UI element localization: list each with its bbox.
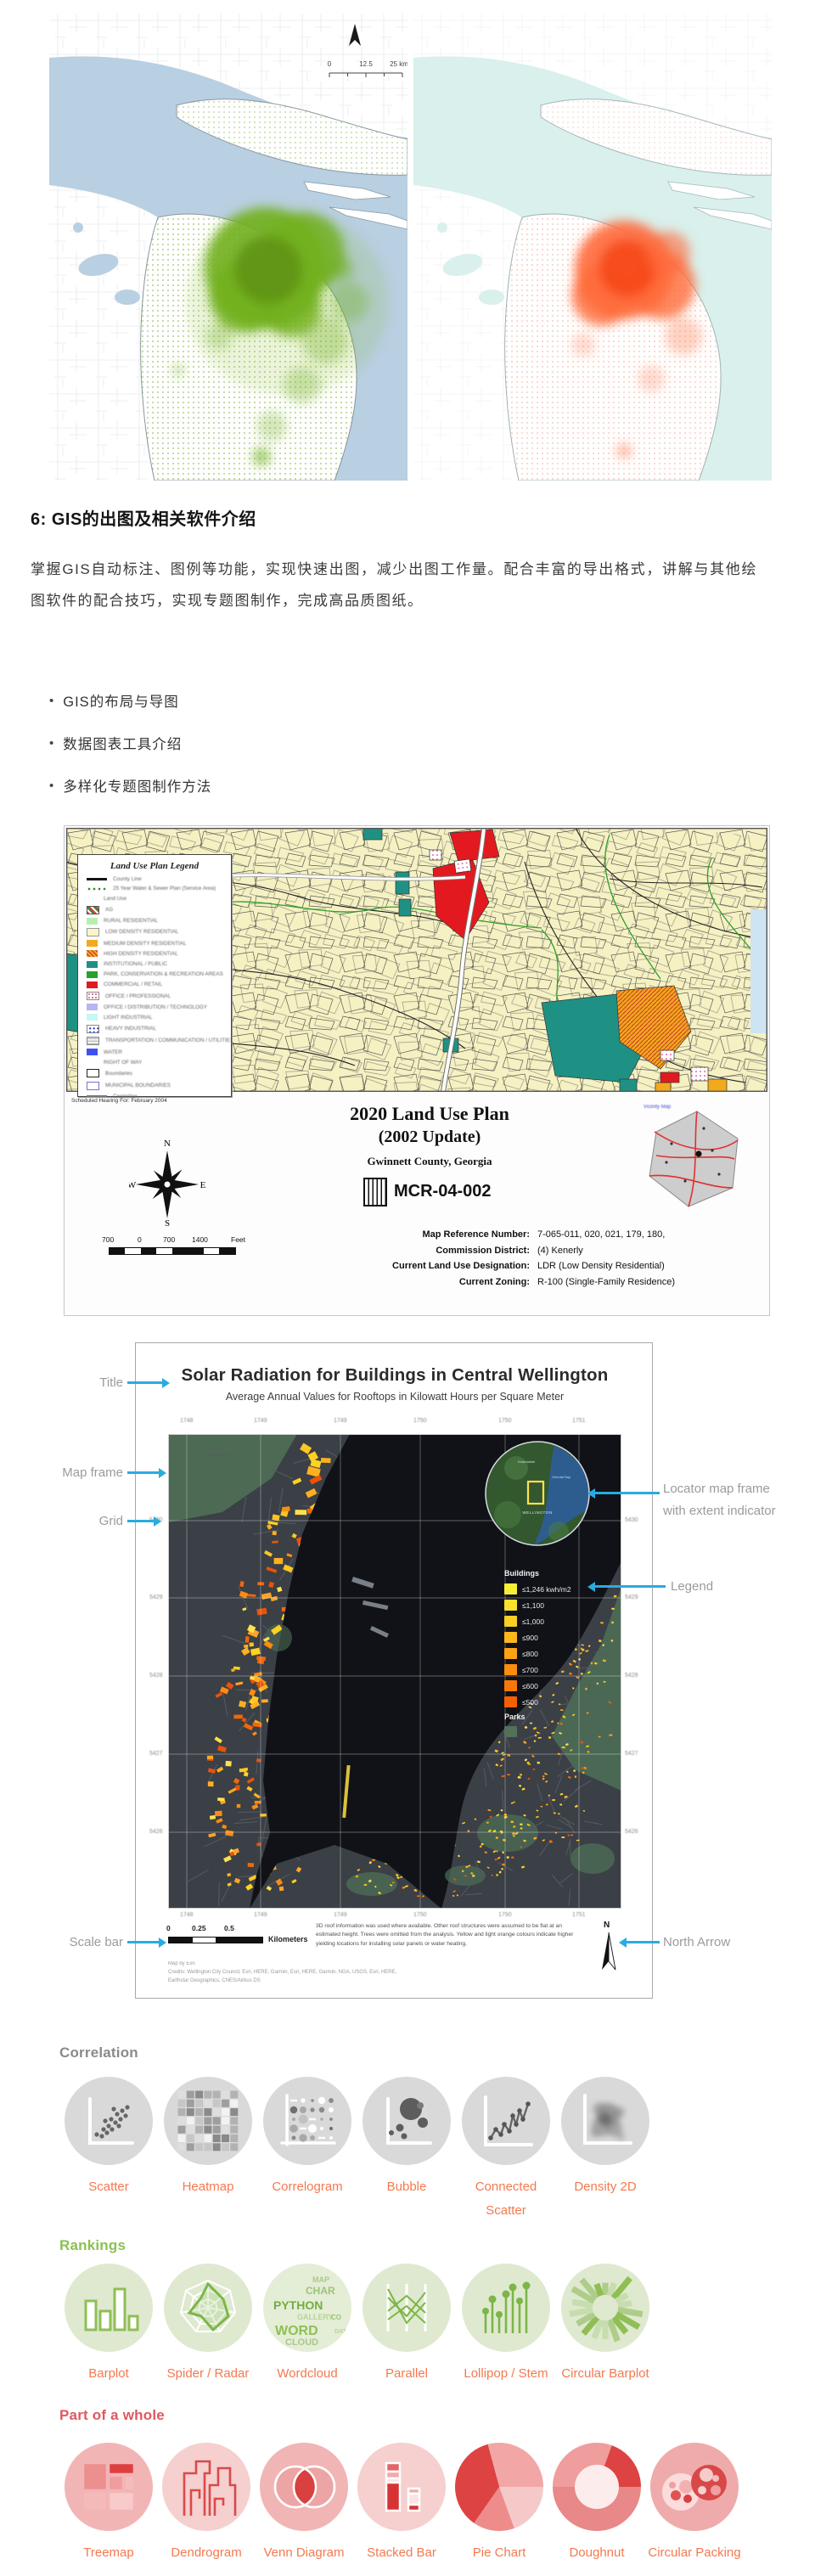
- gallery-item-wordcloud: MAP CHAR PYTHON GALLERY CO WORD CLOUD DA…: [263, 2264, 351, 2386]
- annotation-arrow-icon: [127, 1520, 155, 1522]
- legend-swatch: [87, 961, 98, 968]
- gallery-row-correlation: Scatter Heatmap Correlogram: [65, 2077, 649, 2223]
- legend-swatch: [87, 981, 98, 988]
- legend-label: LIGHT INDUSTRIAL: [104, 1015, 153, 1021]
- legend-label: AG: [105, 907, 113, 913]
- legend-label: TRANSPORTATION / COMMUNICATION / UTILITI…: [105, 1038, 231, 1043]
- parallel-coordinates-icon: [363, 2264, 451, 2352]
- legend-label: MUNICIPAL BOUNDARIES: [105, 1083, 171, 1088]
- legend-label: Land Use: [104, 896, 126, 902]
- legend-label: RIGHT OF WAY: [104, 1060, 142, 1066]
- gallery-item-connected-scatter: Connected Scatter: [462, 2077, 550, 2223]
- legend-row: Boundaries: [87, 1069, 231, 1077]
- legend-swatch: [87, 1082, 99, 1090]
- gallery-item-bubble: Bubble: [363, 2077, 451, 2223]
- legend-class-label: ≤500: [522, 1698, 538, 1707]
- legend-swatch: [87, 1069, 99, 1077]
- gallery-item-label: Scatter: [59, 2175, 159, 2199]
- legend-class-row: ≤900: [504, 1632, 610, 1643]
- gallery-item-barplot: Barplot: [65, 2264, 153, 2386]
- scatter-plot-icon: [65, 2077, 153, 2165]
- venn-diagram-icon: [260, 2443, 348, 2531]
- poster-north-label: N: [604, 1921, 610, 1930]
- legend-label: RURAL RESIDENTIAL: [104, 918, 158, 924]
- legend-row: HEAVY INDUSTRIAL: [87, 1025, 231, 1033]
- landuse-county: Gwinnett County, Georgia: [285, 1155, 574, 1168]
- landuse-title: 2020 Land Use Plan: [285, 1103, 574, 1125]
- gallery-item-label: Heatmap: [158, 2175, 258, 2199]
- legend-items: County Line 25 Year Water & Sewer Plan (…: [78, 876, 231, 1100]
- svg-text:W: W: [129, 1180, 137, 1190]
- connected-scatter-icon: [462, 2077, 550, 2165]
- bubble-chart-icon: [363, 2077, 451, 2165]
- legend-swatch: [87, 1025, 99, 1033]
- gallery-item-correlogram: Correlogram: [263, 2077, 351, 2223]
- list-item: • 多样化专题图制作方法: [49, 764, 211, 807]
- gallery-row-part-of-a-whole: Treemap Dendrogram: [65, 2443, 739, 2565]
- legend-swatch: [87, 906, 99, 914]
- legend-row: RURAL RESIDENTIAL: [87, 918, 231, 925]
- svg-text:MAP: MAP: [312, 2275, 329, 2284]
- water-strip: [750, 909, 767, 1033]
- annotation-title: Title: [51, 1375, 123, 1390]
- legend-swatch: [87, 886, 107, 891]
- gallery-item-label: Doughnut: [547, 2541, 647, 2565]
- legend-class-row: ≤1,000: [504, 1616, 610, 1627]
- treemap-icon: [65, 2443, 153, 2531]
- gallery-item-label: Venn Diagram: [254, 2541, 354, 2565]
- legend-class-row: ≤800: [504, 1648, 610, 1659]
- credit-line: Earthstar Geographics, CNES/Airbus DS: [168, 1977, 448, 1985]
- legend-swatch: [87, 1037, 99, 1045]
- legend-swatch: [87, 940, 98, 947]
- legend-row: 25 Year Water & Sewer Plan (Service Area…: [87, 886, 231, 891]
- gallery-item-label: Wordcloud: [257, 2362, 357, 2386]
- gallery-item-circular-packing: Circular Packing: [650, 2443, 739, 2565]
- legend-swatch: [87, 992, 99, 1000]
- legend-row: OFFICE / PROFESSIONAL: [87, 992, 231, 1000]
- gallery-item-label: Spider / Radar: [158, 2362, 258, 2386]
- annotation-map-frame: Map frame: [34, 1465, 123, 1480]
- annotation-north-arrow: North Arrow: [663, 1935, 730, 1949]
- gallery-item-label: Pie Chart: [449, 2541, 549, 2565]
- credit-line: Credits: Wellington City Council, Esri, …: [168, 1968, 448, 1977]
- page: 0 12.5 25 km: [0, 0, 815, 2576]
- gallery-item-label: Circular Barplot: [555, 2362, 655, 2386]
- legend-swatch: [87, 950, 98, 957]
- stacked-bar-icon: [357, 2443, 446, 2531]
- svg-text:Oriental Bay: Oriental Bay: [552, 1475, 570, 1479]
- gallery-item-heatmap: Heatmap: [164, 2077, 252, 2223]
- legend-swatch: [87, 1095, 107, 1097]
- svg-text:25 km: 25 km: [390, 60, 407, 68]
- legend-class-swatch: [504, 1616, 517, 1627]
- legend-class-swatch: [504, 1600, 517, 1611]
- gallery-item-density-2d: Density 2D: [561, 2077, 649, 2223]
- svg-text:WORD: WORD: [275, 2324, 318, 2338]
- doughnut-hole: [575, 2465, 619, 2509]
- legend-row: HIGH DENSITY RESIDENTIAL: [87, 950, 231, 957]
- info-value: (4) Kenerly: [537, 1243, 583, 1259]
- info-row: Map Reference Number: 7-065-011, 020, 02…: [318, 1227, 759, 1243]
- density-2d-icon: [561, 2077, 649, 2165]
- correlogram-icon: [263, 2077, 351, 2165]
- svg-text:S: S: [165, 1218, 170, 1227]
- legend-swatch: [87, 895, 98, 902]
- legend-swatch: [87, 918, 98, 925]
- legend-row: MEDIUM DENSITY RESIDENTIAL: [87, 940, 231, 947]
- spider-radar-icon: [164, 2264, 252, 2352]
- bullet-icon: •: [49, 736, 54, 751]
- svg-text:E: E: [200, 1180, 205, 1190]
- dendrogram-icon: [162, 2443, 250, 2531]
- list-item-label: GIS的布局与导图: [63, 690, 178, 711]
- poster-title: Solar Radiation for Buildings in Central…: [153, 1365, 637, 1386]
- wordcloud-icon: MAP CHAR PYTHON GALLERY CO WORD CLOUD DA…: [263, 2264, 351, 2352]
- legend-class-label: ≤1,100: [522, 1601, 544, 1610]
- doughnut-chart-icon: [553, 2443, 641, 2531]
- gallery-item-label: Dendrogram: [156, 2541, 256, 2565]
- gallery-item-spider-radar: Spider / Radar: [164, 2264, 252, 2386]
- legend-class-row: ≤500: [504, 1696, 610, 1707]
- legend-row: Land Use: [87, 895, 231, 902]
- land-use-legend: Land Use Plan Legend County Line 25 Year…: [77, 854, 232, 1097]
- gallery-item-label: Correlogram: [257, 2175, 357, 2199]
- info-label: Current Zoning:: [318, 1274, 530, 1291]
- gallery-item-pie: Pie Chart: [455, 2443, 543, 2565]
- annotation-scale-bar: Scale bar: [34, 1935, 123, 1949]
- legend-label: OFFICE / DISTRIBUTION / TECHNOLOGY: [104, 1004, 207, 1010]
- gallery-item-treemap: Treemap: [65, 2443, 153, 2565]
- legend-class-label: ≤900: [522, 1634, 538, 1642]
- legend-class-swatch: [504, 1583, 517, 1595]
- svg-text:DAT: DAT: [334, 2329, 347, 2335]
- gallery-item-label: Treemap: [59, 2541, 159, 2565]
- mcr-swatch-icon: [363, 1178, 387, 1206]
- info-value: 7-065-011, 020, 021, 179, 180,: [537, 1227, 665, 1243]
- north-arrow-icon: [599, 1931, 619, 1977]
- info-row: Commission District: (4) Kenerly: [318, 1243, 759, 1259]
- gallery-row-rankings: Barplot Spider / Radar MAP: [65, 2264, 649, 2386]
- section-paragraph: 掌握GIS自动标注、图例等功能，实现快速出图，减少出图工作量。配合丰富的导出格式…: [31, 554, 757, 616]
- legend-row: MUNICIPAL BOUNDARIES: [87, 1082, 231, 1090]
- legend-swatch: [87, 971, 98, 978]
- legend-class-row: ≤1,100: [504, 1600, 610, 1611]
- annotation-arrow-icon: [626, 1941, 660, 1943]
- legend-class-row: ≤600: [504, 1680, 610, 1691]
- land-use-plan-figure: Land Use Plan Legend County Line 25 Year…: [64, 825, 770, 1316]
- gallery-item-label: Lollipop / Stem: [456, 2362, 556, 2386]
- legend-class-row: ≤700: [504, 1664, 610, 1675]
- legend-class-label: ≤1,246 kwh/m2: [522, 1585, 571, 1594]
- legend-class-swatch: [504, 1680, 517, 1691]
- parks-swatch: [504, 1726, 517, 1737]
- legend-swatch: [87, 1059, 98, 1066]
- legend-row: WATER: [87, 1049, 231, 1055]
- legend-title: Land Use Plan Legend: [78, 861, 231, 871]
- legend-class-swatch: [504, 1648, 517, 1659]
- poster-note: 3D roof information was used where avail…: [316, 1922, 587, 1949]
- svg-text:GALLERY: GALLERY: [297, 2313, 334, 2321]
- hearing-note: Scheduled Hearing For: February 2004: [71, 1098, 167, 1104]
- legend-row: LIGHT INDUSTRIAL: [87, 1014, 231, 1021]
- mcr-code: MCR-04-002: [394, 1182, 491, 1201]
- gallery-item-scatter: Scatter: [65, 2077, 153, 2223]
- legend-class-label: ≤700: [522, 1666, 538, 1674]
- solar-legend: Buildings ≤1,246 kwh/m2 ≤1,100: [504, 1569, 610, 1741]
- annotation-arrow-icon: [127, 1941, 160, 1943]
- vicinity-inset-map: [638, 1106, 748, 1212]
- gallery-item-label: Density 2D: [555, 2175, 655, 2199]
- legend-class-swatch: [504, 1696, 517, 1707]
- annotation-arrow-icon: [127, 1381, 163, 1384]
- section-heading: 6: GIS的出图及相关软件介绍: [31, 505, 256, 530]
- svg-text:PYTHON: PYTHON: [273, 2298, 323, 2312]
- gallery-item-venn: Venn Diagram: [260, 2443, 348, 2565]
- legend-label: COMMERCIAL / RETAIL: [104, 981, 162, 987]
- annotation-arrow-icon: [594, 1492, 660, 1494]
- legend-label: Boundaries: [105, 1071, 132, 1077]
- orange-dot-density-map: [413, 14, 772, 481]
- gallery-item-stacked-bar: Stacked Bar: [357, 2443, 446, 2565]
- gallery-item-label: Parallel: [357, 2362, 457, 2386]
- legend-label: WATER: [104, 1049, 122, 1055]
- list-item-label: 多样化专题图制作方法: [63, 775, 211, 796]
- legend-row: TRANSPORTATION / COMMUNICATION / UTILITI…: [87, 1037, 231, 1045]
- bullet-icon: •: [49, 779, 54, 793]
- legend-label: County Line: [113, 876, 142, 882]
- legend-row: OFFICE / DISTRIBUTION / TECHNOLOGY: [87, 1004, 231, 1010]
- annotation-grid: Grid: [51, 1514, 123, 1528]
- compass-rose-icon: N S W E: [129, 1139, 205, 1227]
- circular-packing-icon: [650, 2443, 739, 2531]
- legend-label: 25 Year Water & Sewer Plan (Service Area…: [113, 886, 216, 891]
- gallery-item-label: Connected Scatter: [456, 2175, 556, 2223]
- landuse-scale-bar: 700 0 700 1400 Feet: [65, 1235, 285, 1261]
- svg-text:Khandallah: Khandallah: [518, 1460, 535, 1464]
- info-label: Commission District:: [318, 1243, 530, 1259]
- gallery-section-part-of-a-whole: Part of a whole: [59, 2407, 165, 2424]
- gallery-item-circular-barplot: Circular Barplot: [561, 2264, 649, 2386]
- legend-row: AG: [87, 906, 231, 914]
- list-item-label: 数据图表工具介绍: [63, 733, 182, 753]
- gallery-item-doughnut: Doughnut: [553, 2443, 641, 2565]
- svg-text:12.5: 12.5: [359, 60, 373, 68]
- legend-swatch: [87, 878, 107, 880]
- legend-row: INSTITUTIONAL / PUBLIC: [87, 961, 231, 968]
- poster-credits: Map by EsriCredits: Wellington City Coun…: [168, 1960, 448, 1986]
- gallery-section-correlation: Correlation: [59, 2044, 138, 2061]
- legend-label: MEDIUM DENSITY RESIDENTIAL: [104, 941, 187, 947]
- legend-swatch: [87, 1049, 98, 1055]
- info-label: Map Reference Number:: [318, 1227, 530, 1243]
- annotation-arrow-icon: [127, 1471, 160, 1474]
- gallery-item-dendrogram: Dendrogram: [162, 2443, 250, 2565]
- gallery-section-rankings: Rankings: [59, 2237, 126, 2254]
- gallery-item-label: Circular Packing: [644, 2541, 745, 2565]
- legend-swatch: [87, 1004, 98, 1010]
- legend-swatch: [87, 928, 99, 936]
- solar-radiation-poster: Solar Radiation for Buildings in Central…: [135, 1342, 653, 1999]
- gallery-item-lollipop: Lollipop / Stem: [462, 2264, 550, 2386]
- legend-class-label: ≤600: [522, 1682, 538, 1690]
- gallery-item-label: Barplot: [59, 2362, 159, 2386]
- legend-label: HIGH DENSITY RESIDENTIAL: [104, 951, 178, 957]
- legend-label: INSTITUTIONAL / PUBLIC: [104, 961, 167, 967]
- legend-class-label: ≤800: [522, 1650, 538, 1658]
- barplot-icon: [65, 2264, 153, 2352]
- legend-row: RIGHT OF WAY: [87, 1059, 231, 1066]
- legend-label: OFFICE / PROFESSIONAL: [105, 993, 171, 999]
- section-bullet-list: • GIS的布局与导图 • 数据图表工具介绍 • 多样化专题图制作方法: [49, 679, 211, 807]
- gallery-item-parallel: Parallel: [363, 2264, 451, 2386]
- circular-barplot-icon: [561, 2264, 649, 2352]
- svg-text:N: N: [164, 1139, 171, 1149]
- gallery-item-label: Stacked Bar: [351, 2541, 452, 2565]
- legend-class-swatch: [504, 1664, 517, 1675]
- info-value: R-100 (Single-Family Residence): [537, 1274, 675, 1291]
- legend-row: COMMERCIAL / RETAIL: [87, 981, 231, 988]
- legend-label: LOW DENSITY RESIDENTIAL: [105, 929, 178, 935]
- list-item: • 数据图表工具介绍: [49, 722, 211, 764]
- legend-row: LOW DENSITY RESIDENTIAL: [87, 928, 231, 936]
- bullet-icon: •: [49, 694, 54, 708]
- annotation-legend: Legend: [671, 1579, 713, 1594]
- lollipop-icon: [462, 2264, 550, 2352]
- legend-label: PARK, CONSERVATION & RECREATION AREAS: [104, 971, 223, 977]
- svg-text:CHAR: CHAR: [306, 2285, 335, 2297]
- pie-chart-icon: [455, 2443, 543, 2531]
- legend-class-label: ≤1,000: [522, 1617, 544, 1626]
- info-value: LDR (Low Density Residential): [537, 1258, 665, 1274]
- legend-swatch: [87, 1014, 98, 1021]
- svg-text:CLOUD: CLOUD: [285, 2337, 318, 2348]
- svg-text:CO: CO: [331, 2314, 341, 2321]
- annotation-locator: Locator map frame with extent indicator: [663, 1478, 782, 1521]
- svg-text:0: 0: [328, 60, 332, 68]
- landuse-info-table: Map Reference Number: 7-065-011, 020, 02…: [318, 1227, 759, 1290]
- legend-row: County Line: [87, 876, 231, 882]
- svg-text:WELLINGTON: WELLINGTON: [522, 1510, 552, 1515]
- legend-row: PARK, CONSERVATION & RECREATION AREAS: [87, 971, 231, 978]
- info-row: Current Land Use Designation: LDR (Low D…: [318, 1258, 759, 1274]
- legend-class-swatch: [504, 1632, 517, 1643]
- green-dot-density-map: 0 12.5 25 km: [49, 14, 407, 481]
- list-item: • GIS的布局与导图: [49, 679, 211, 722]
- landuse-title-2: (2002 Update): [285, 1128, 574, 1147]
- heatmap-icon: [164, 2077, 252, 2165]
- poster-subtitle: Average Annual Values for Rooftops in Ki…: [153, 1391, 637, 1403]
- info-row: Current Zoning: R-100 (Single-Family Res…: [318, 1274, 759, 1291]
- credit-line: Map by Esri: [168, 1960, 448, 1968]
- gallery-item-label: Bubble: [357, 2175, 457, 2199]
- info-label: Current Land Use Designation:: [318, 1258, 530, 1274]
- legend-label: HEAVY INDUSTRIAL: [105, 1026, 156, 1032]
- annotation-arrow-icon: [594, 1585, 666, 1588]
